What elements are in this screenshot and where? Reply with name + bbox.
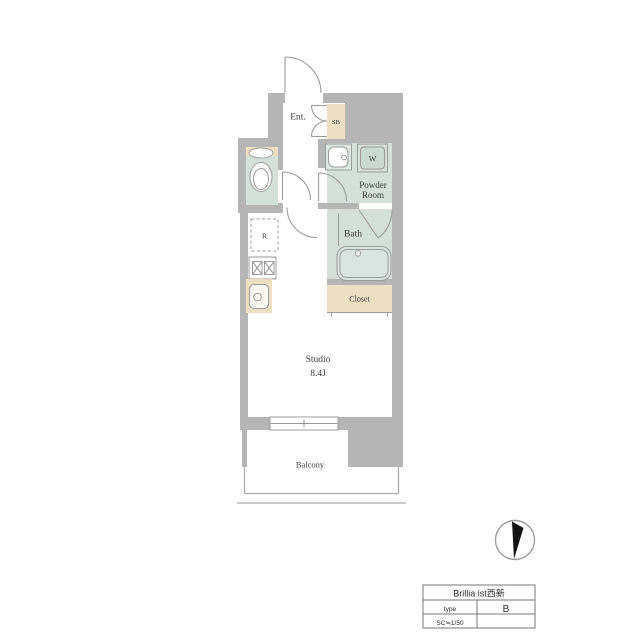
type-value: B [503, 604, 510, 615]
scale-annotation: SC≒1/50 [436, 620, 464, 627]
washer-label: W [369, 155, 377, 164]
closet-front [327, 313, 392, 317]
title-block: Brillia ist西新 type B SC≒1/50 [423, 585, 535, 628]
wall-segment [240, 213, 248, 430]
powder-room-label: Powder [359, 180, 387, 190]
toilet-fixture [249, 148, 273, 192]
closet-label: Closet [349, 295, 370, 304]
refrigerator-label: R [262, 232, 267, 241]
shoe-box-doors [312, 106, 328, 137]
balcony-label: Balcony [296, 460, 325, 470]
floor-plan-page: Ent. SB Powder Room W Bath R Closet Stud… [0, 0, 640, 640]
balcony-outline [237, 467, 406, 503]
kitchen-sink-fixture [246, 279, 272, 313]
washbasin-fixture [326, 144, 352, 170]
wall-segment [348, 430, 403, 467]
sliding-window [270, 417, 338, 430]
bath-label: Bath [344, 230, 362, 240]
powder-room-label2: Room [362, 190, 384, 200]
wall-segment [318, 139, 345, 143]
floor-plan-drawing: Ent. SB Powder Room W Bath R Closet Stud… [0, 0, 640, 640]
wall-segment [240, 417, 270, 430]
bath-doorway [359, 203, 392, 209]
studio-label: Studio [306, 355, 331, 365]
wall-segment [268, 93, 283, 138]
studio-size-label: 8.4J [310, 369, 326, 379]
toilet-door [283, 172, 311, 200]
studio-door [287, 208, 317, 238]
wall-segment [242, 430, 247, 467]
type-label: type [444, 606, 457, 613]
wall-segment [392, 93, 403, 430]
wall-segment [345, 103, 392, 143]
project-name: Brillia ist西新 [453, 588, 505, 599]
entrance-door [285, 57, 321, 93]
north-compass-icon [496, 521, 535, 560]
entrance-label: Ent. [290, 113, 306, 123]
stove-fixture [249, 257, 276, 279]
shoe-box-label: SB [332, 119, 341, 126]
wall-segment [323, 93, 403, 103]
